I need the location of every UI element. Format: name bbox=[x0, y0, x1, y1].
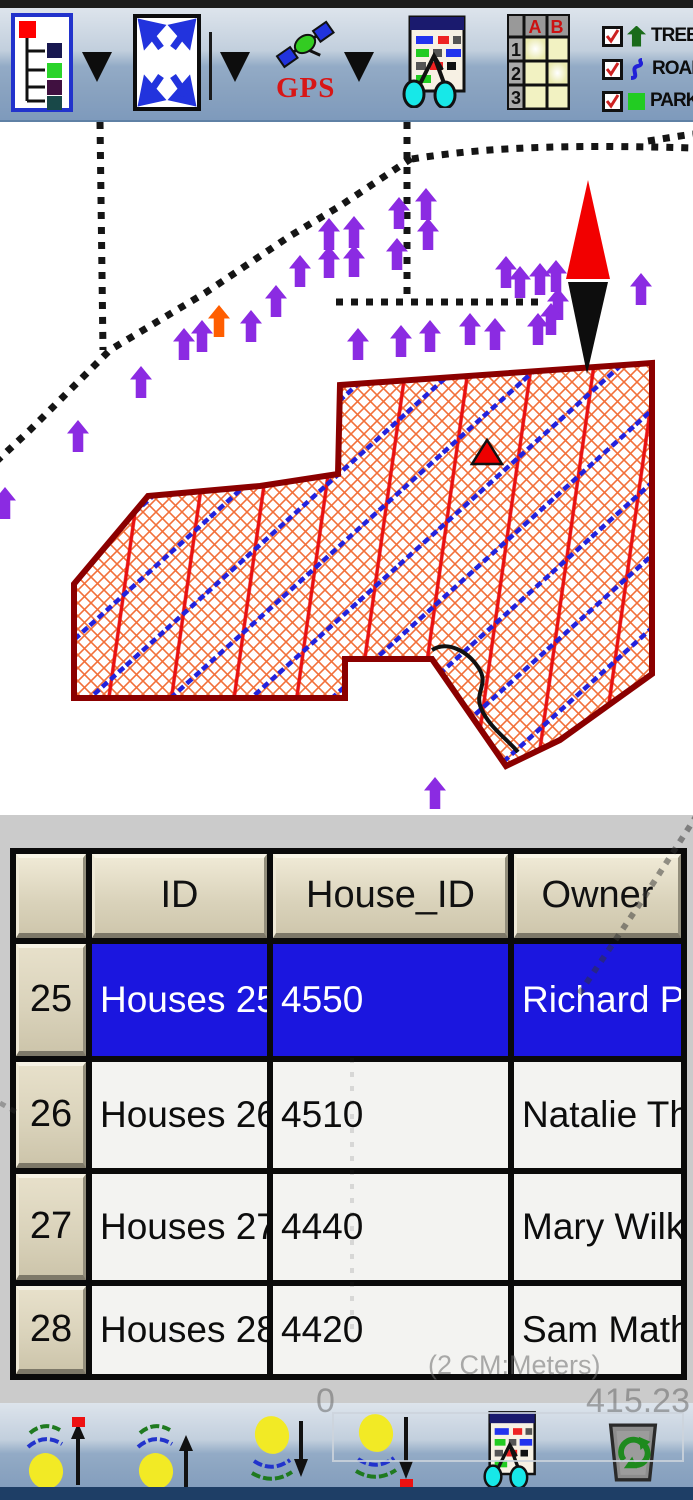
layer-legend: TREE ROAD PARK bbox=[602, 24, 692, 120]
toolbar-separator bbox=[209, 32, 212, 100]
gps-satellite-icon bbox=[274, 14, 336, 76]
top-toolbar: GPS bbox=[0, 8, 693, 122]
cell-owner[interactable]: Natalie Tho bbox=[514, 1062, 681, 1168]
layers-button[interactable] bbox=[11, 13, 73, 117]
tree-marker[interactable] bbox=[417, 218, 439, 250]
park-symbol-icon bbox=[628, 93, 645, 110]
cell-house-id[interactable]: 4510 bbox=[273, 1062, 508, 1168]
tree-marker[interactable] bbox=[484, 318, 506, 350]
tree-marker-layer bbox=[0, 122, 693, 815]
tree-marker[interactable] bbox=[318, 218, 340, 250]
move-layer-up-button[interactable] bbox=[134, 1419, 196, 1494]
cell-house-id[interactable]: 4440 bbox=[273, 1174, 508, 1280]
tree-marker[interactable] bbox=[318, 246, 340, 278]
column-header-owner[interactable]: Owner bbox=[514, 854, 681, 938]
row-number-cell[interactable]: 26 bbox=[16, 1062, 86, 1168]
road-symbol-icon bbox=[627, 58, 647, 80]
tree-marker[interactable] bbox=[130, 366, 152, 398]
cell-owner[interactable]: Sam Mathe bbox=[514, 1286, 681, 1374]
layers-legend-icon bbox=[11, 13, 73, 112]
find-button[interactable] bbox=[396, 14, 468, 113]
zoom-dropdown-arrow[interactable] bbox=[220, 52, 250, 82]
cell-owner[interactable]: Richard Phe bbox=[514, 944, 681, 1056]
gps-dropdown-arrow[interactable] bbox=[344, 52, 374, 82]
move-layer-to-bottom-button[interactable] bbox=[352, 1413, 416, 1496]
tree-symbol-icon bbox=[627, 26, 646, 47]
column-header-id[interactable]: ID bbox=[92, 854, 267, 938]
legend-label: TREE bbox=[651, 25, 693, 47]
tree-marker[interactable] bbox=[0, 487, 16, 519]
tree-marker[interactable] bbox=[386, 238, 408, 270]
tree-marker[interactable] bbox=[289, 255, 311, 287]
row-number-cell[interactable]: 27 bbox=[16, 1174, 86, 1280]
gps-button[interactable]: GPS bbox=[274, 14, 336, 81]
move-layer-down-button[interactable] bbox=[246, 1415, 310, 1492]
cell-house-id[interactable]: 4550 bbox=[273, 944, 508, 1056]
tree-marker[interactable] bbox=[265, 285, 287, 317]
move-up-icon bbox=[134, 1419, 196, 1489]
layers-dropdown-arrow[interactable] bbox=[82, 52, 112, 82]
legend-item-road: ROAD bbox=[602, 57, 693, 81]
tree-marker[interactable] bbox=[419, 320, 441, 352]
tree-marker[interactable] bbox=[343, 216, 365, 248]
app-window: GPS bbox=[0, 0, 693, 1500]
park-checkbox[interactable] bbox=[602, 91, 623, 112]
tree-marker[interactable] bbox=[388, 197, 410, 229]
tree-marker[interactable] bbox=[527, 313, 549, 345]
tree-marker[interactable] bbox=[630, 273, 652, 305]
cell-id[interactable]: Houses 25 bbox=[92, 944, 267, 1056]
find-binoculars-icon bbox=[396, 14, 468, 108]
row-number-cell[interactable]: 25 bbox=[16, 944, 86, 1056]
tree-marker[interactable] bbox=[347, 328, 369, 360]
tree-marker[interactable] bbox=[509, 266, 531, 298]
tree-marker[interactable] bbox=[67, 420, 89, 452]
svg-text:3: 3 bbox=[511, 88, 521, 108]
cell-id[interactable]: Houses 28 bbox=[92, 1286, 267, 1374]
tree-marker[interactable] bbox=[191, 320, 213, 352]
attribute-table: ID House_ID Owner 25 Houses 25 4550 Rich… bbox=[10, 848, 687, 1380]
move-layer-to-top-button[interactable] bbox=[24, 1417, 90, 1494]
road-checkbox[interactable] bbox=[602, 59, 623, 80]
cell-id[interactable]: Houses 27 bbox=[92, 1174, 267, 1280]
legend-label: PARK bbox=[650, 90, 693, 112]
move-to-bottom-icon bbox=[352, 1413, 416, 1491]
legend-label: ROAD bbox=[652, 58, 693, 80]
bottom-toolbar bbox=[0, 1403, 693, 1500]
corner-header-cell[interactable] bbox=[16, 854, 86, 938]
status-strip bbox=[0, 0, 693, 8]
attribute-table-panel: ID House_ID Owner 25 Houses 25 4550 Rich… bbox=[0, 815, 693, 1403]
recycle-bin-icon bbox=[604, 1415, 662, 1485]
cell-house-id[interactable]: 4420 bbox=[273, 1286, 508, 1374]
svg-text:1: 1 bbox=[511, 40, 521, 60]
tree-marker[interactable] bbox=[343, 245, 365, 277]
find-button-bottom[interactable] bbox=[478, 1409, 538, 1494]
tree-checkbox[interactable] bbox=[602, 26, 623, 47]
svg-text:A: A bbox=[529, 17, 542, 37]
svg-text:B: B bbox=[551, 17, 564, 37]
zoom-extent-icon bbox=[133, 14, 201, 111]
legend-item-park: PARK bbox=[602, 89, 693, 113]
move-to-top-icon bbox=[24, 1417, 90, 1489]
cell-id[interactable]: Houses 26 bbox=[92, 1062, 267, 1168]
tree-marker[interactable] bbox=[459, 313, 481, 345]
find-binoculars-icon bbox=[478, 1409, 538, 1489]
svg-text:2: 2 bbox=[511, 64, 521, 84]
tree-marker[interactable] bbox=[240, 310, 262, 342]
column-header-house-id[interactable]: House_ID bbox=[273, 854, 508, 938]
move-down-icon bbox=[246, 1415, 310, 1487]
attribute-table-button[interactable]: A B 1 2 3 bbox=[507, 14, 570, 115]
zoom-extent-button[interactable] bbox=[133, 14, 201, 116]
recycle-bin-button[interactable] bbox=[604, 1415, 662, 1490]
table-grid-icon: A B 1 2 3 bbox=[507, 14, 570, 110]
cell-owner[interactable]: Mary Wilker bbox=[514, 1174, 681, 1280]
tree-marker[interactable] bbox=[495, 256, 517, 288]
map-canvas[interactable] bbox=[0, 122, 693, 815]
tree-marker[interactable] bbox=[529, 263, 551, 295]
tree-marker[interactable] bbox=[390, 325, 412, 357]
row-number-cell[interactable]: 28 bbox=[16, 1286, 86, 1374]
tree-marker[interactable] bbox=[424, 777, 446, 809]
bottom-edge-strip bbox=[0, 1487, 693, 1500]
tree-marker[interactable] bbox=[415, 188, 437, 220]
legend-item-tree: TREE bbox=[602, 24, 693, 48]
gps-label: GPS bbox=[276, 72, 334, 105]
